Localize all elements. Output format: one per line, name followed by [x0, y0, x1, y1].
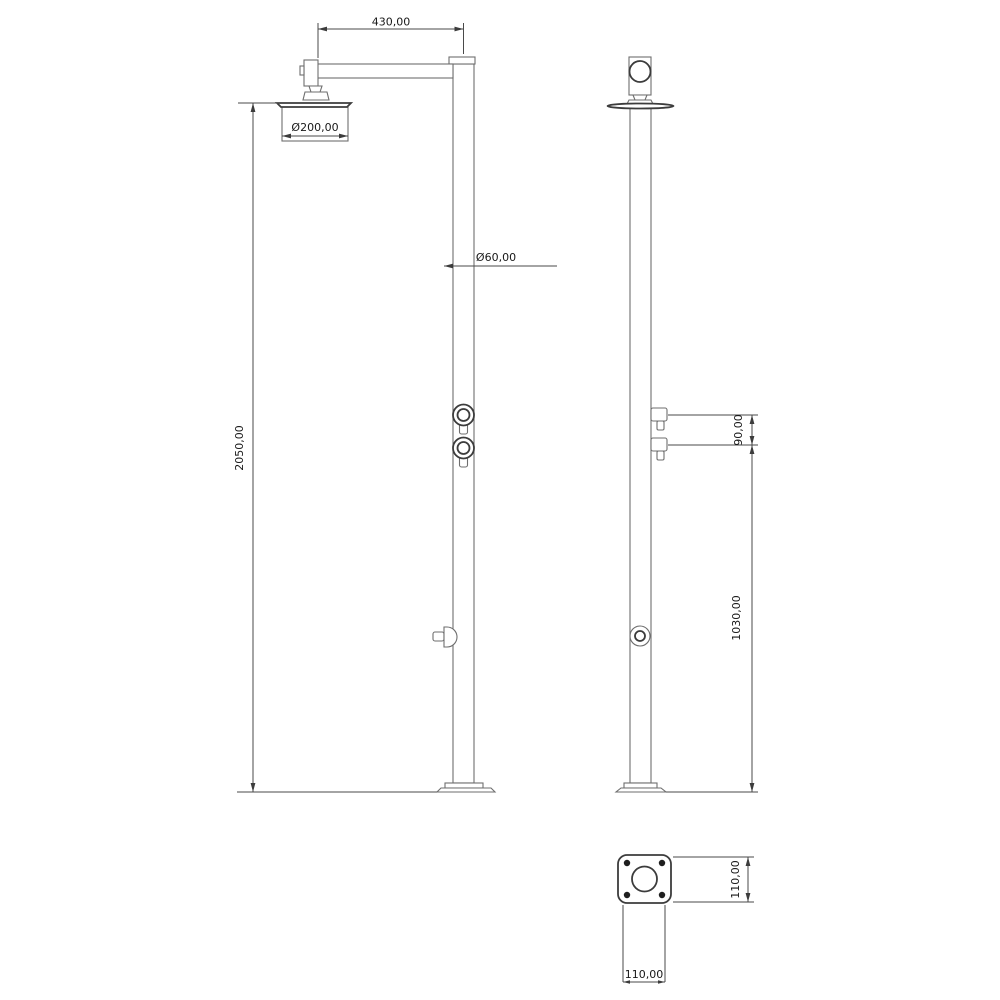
ball-joint [630, 61, 651, 82]
mixer-knob-lower-inner [458, 442, 470, 454]
dim-arm-length-label: 430,00 [372, 16, 411, 29]
dim-total-height-label: 2050,00 [233, 425, 246, 471]
base-plate-side-view [616, 788, 666, 792]
dim-arm-length: 430,00 [318, 16, 464, 59]
dim-head-diameter: Ø200,00 [282, 121, 348, 138]
column-top-cap [449, 57, 475, 64]
shower-column-technical-drawing: 430,00 Ø200,00 Ø60,00 2050,00 [0, 0, 1000, 1000]
front-view [277, 57, 495, 792]
base-step-front [445, 783, 483, 788]
side-neck-upper [633, 95, 647, 100]
dim-pipe-diameter-label: Ø60,00 [476, 251, 516, 264]
base-plate-front-view [437, 788, 495, 792]
dim-total-height: 2050,00 [233, 103, 437, 792]
bolt-hole-bottom-left [624, 892, 630, 898]
dim-outlet-height-label: 1030,00 [730, 595, 743, 641]
dimensions: 430,00 Ø200,00 Ø60,00 2050,00 [233, 16, 758, 984]
column-side [630, 108, 651, 783]
dim-handle-spacing-label: 90,00 [732, 414, 745, 446]
dim-base-plate-front-label: 110,00 [625, 968, 664, 981]
dim-base-plate-side-label: 110,00 [729, 860, 742, 899]
base-step-side [624, 783, 657, 788]
knob-side-upper-stem [657, 421, 664, 430]
shower-arm [317, 64, 453, 78]
dim-base-plate-side: 110,00 [673, 857, 754, 902]
dim-handle-spacing: 90,00 [668, 414, 758, 446]
bolt-hole-top-left [624, 860, 630, 866]
bolt-hole-top-right [659, 860, 665, 866]
shower-head-brim [277, 103, 351, 107]
side-view [608, 57, 674, 792]
spout-knob [433, 632, 444, 641]
shower-head-side [608, 104, 674, 109]
knob-side-upper [651, 408, 667, 421]
head-neck-upper [309, 86, 322, 92]
knob-side-lower-stem [657, 451, 664, 460]
arm-connector-notch [300, 66, 304, 75]
dim-base-plate-front: 110,00 [623, 905, 665, 984]
base-top-view [618, 855, 671, 903]
knob-side-lower [651, 438, 667, 451]
bolt-hole-bottom-right [659, 892, 665, 898]
dim-outlet-height: 1030,00 [666, 445, 758, 792]
arm-connector [304, 60, 318, 86]
mixer-knob-upper-inner [458, 409, 470, 421]
head-neck-lower [303, 92, 329, 100]
dim-head-diameter-label: Ø200,00 [291, 121, 338, 134]
